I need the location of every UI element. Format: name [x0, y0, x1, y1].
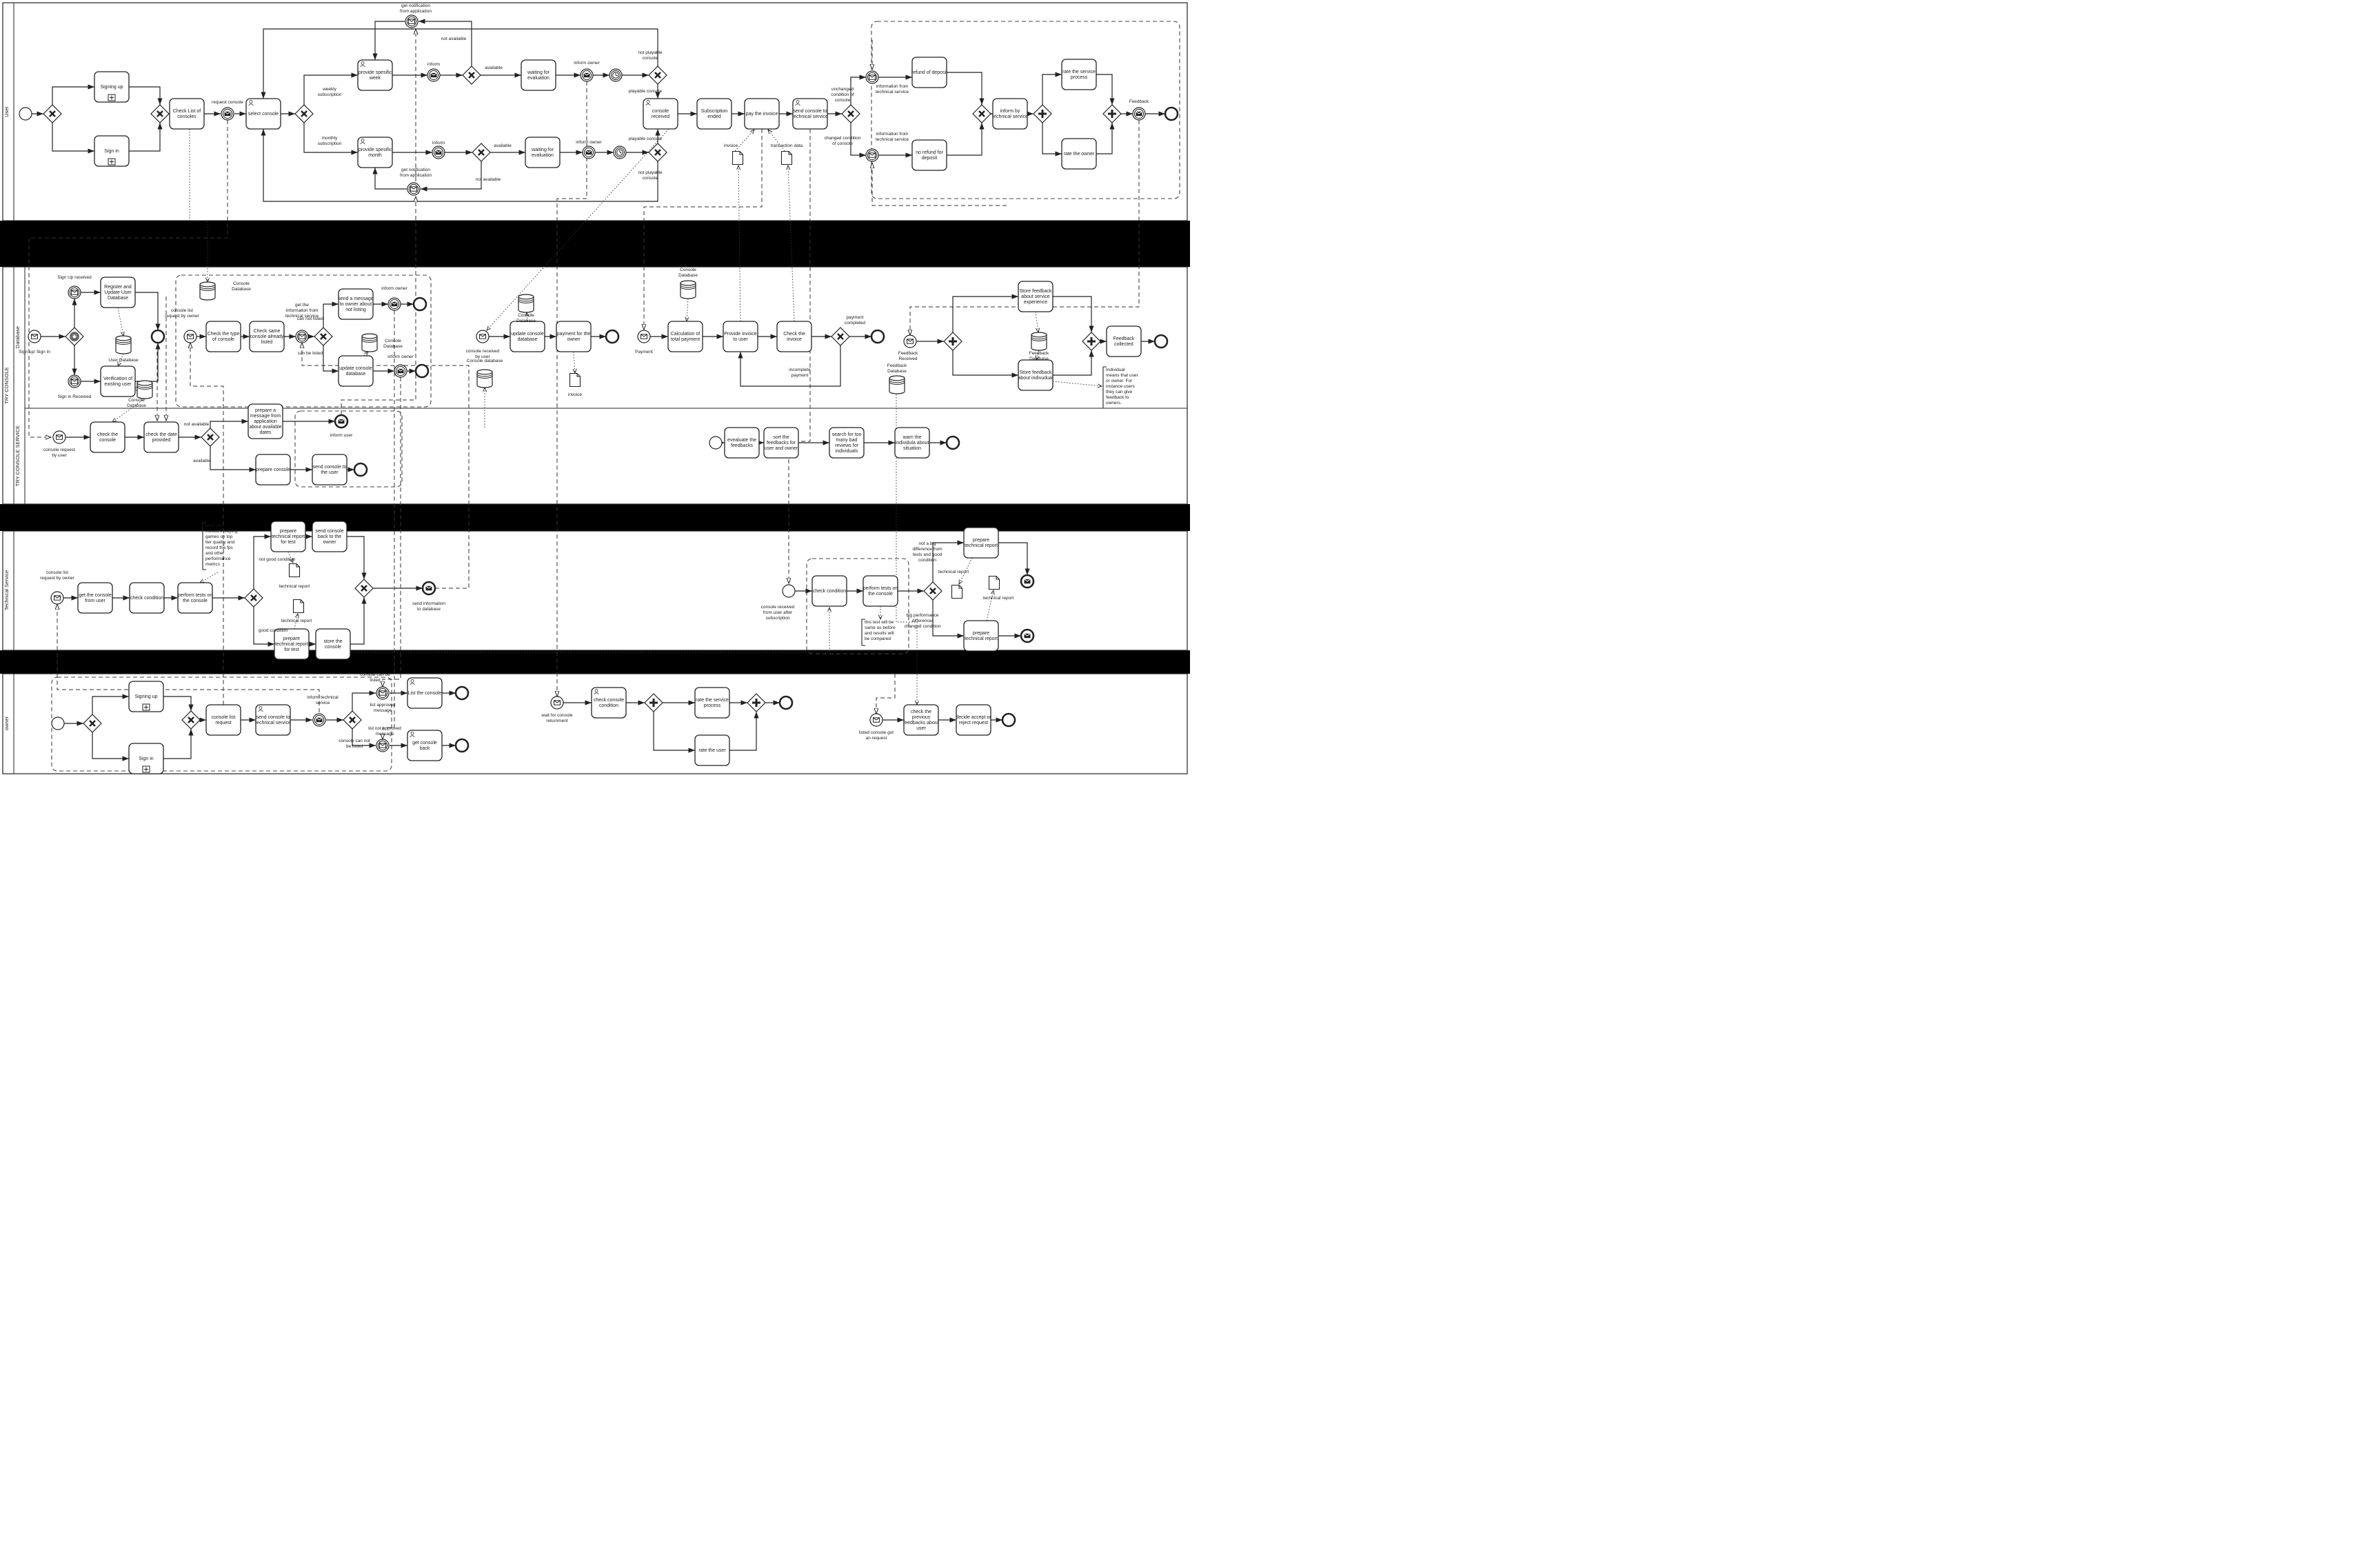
d_cdb4[interactable] — [518, 294, 534, 312]
d_fbdb2[interactable] — [889, 376, 905, 394]
label: service — [316, 701, 330, 705]
label: available — [494, 143, 512, 148]
t2_srch[interactable]: search for toomany badreviews forindivid… — [829, 428, 864, 458]
d_end4[interactable] — [606, 330, 618, 343]
label: Sign up/ Sign In — [19, 350, 50, 354]
label: Check same — [254, 329, 281, 334]
o_sendtech[interactable]: send console totechnical service — [255, 705, 291, 735]
label: request — [215, 721, 231, 725]
d_gw3[interactable] — [831, 328, 849, 345]
d_fbcol[interactable]: Feedbackcollected — [1107, 326, 1141, 357]
label: Database — [232, 287, 251, 292]
edge-label: not playableconsole — [638, 50, 662, 61]
u_gw3[interactable] — [295, 105, 313, 123]
label: Console — [680, 268, 696, 272]
u_select[interactable]: select console — [246, 99, 281, 129]
u_gw2[interactable] — [151, 105, 169, 123]
label: inform owner — [381, 286, 407, 291]
label: Database — [127, 403, 146, 408]
label: condition — [918, 558, 936, 563]
label: message from — [250, 414, 281, 419]
label: console received — [466, 349, 500, 354]
edge-label: available — [193, 459, 211, 463]
d_gwP2[interactable] — [1082, 332, 1100, 350]
label: waiting for — [527, 70, 550, 75]
data-association — [350, 608, 829, 652]
d_sir[interactable] — [68, 375, 81, 388]
d_fbdb[interactable] — [1031, 332, 1047, 350]
sequence-flow — [129, 87, 160, 105]
label: previous — [912, 715, 931, 720]
u_norefund[interactable]: no refund fordeposit — [912, 140, 947, 170]
edge-label: console receivedfrom user aftersubscript… — [761, 605, 795, 621]
doc_invoice[interactable] — [733, 152, 743, 165]
label: listed — [370, 678, 381, 683]
label: technical service — [876, 90, 909, 94]
data-association — [364, 352, 368, 356]
d_end3[interactable] — [416, 365, 428, 377]
label: incomplete — [789, 368, 811, 372]
sequence-flow — [135, 292, 158, 330]
label: Sign Up received — [57, 275, 92, 280]
ts2_start[interactable] — [783, 585, 795, 597]
edge-label: User Database — [108, 358, 139, 363]
o_start[interactable] — [52, 717, 64, 730]
d_end1[interactable] — [152, 330, 164, 343]
label: feedbacks — [731, 443, 753, 448]
d_ssvc[interactable]: Store feedbackabout serviceexperience — [1018, 281, 1053, 312]
label: Technical Service — [3, 570, 10, 610]
u_notif_top[interactable] — [405, 15, 418, 28]
o_gw3[interactable] — [343, 711, 361, 729]
u_month[interactable]: provide spesificmonth — [358, 137, 392, 168]
u_gw7[interactable] — [649, 143, 667, 161]
t_date[interactable]: check the dateprovided — [144, 422, 179, 452]
label: request console — [212, 100, 243, 105]
edge-label: not a bigdifference fromtests and goodco… — [912, 541, 942, 563]
ts_back[interactable]: send consoleback to theowner — [312, 521, 347, 552]
label: payment — [847, 315, 864, 320]
label: Database — [887, 369, 907, 374]
o_ruser[interactable]: rate the user — [695, 735, 729, 765]
d_prov[interactable]: Provide invoiceto user — [723, 321, 758, 352]
o_nappr[interactable] — [376, 739, 389, 752]
o_dec[interactable]: decide accept orreject request — [956, 705, 991, 735]
label: condition — [599, 703, 618, 708]
label: the console — [868, 592, 893, 597]
u_recv[interactable]: consolereceived — [643, 99, 678, 129]
u_gw10[interactable] — [1033, 105, 1051, 123]
d_gw2[interactable] — [314, 328, 332, 345]
o_gwP2[interactable] — [747, 694, 765, 712]
o_it[interactable] — [313, 714, 325, 726]
ts2_tests[interactable]: perform tests onthe console — [863, 576, 898, 606]
label: rate the service — [1062, 70, 1096, 74]
u_fb[interactable] — [1133, 108, 1145, 120]
d_cdb1[interactable] — [137, 381, 152, 399]
o_end2[interactable] — [456, 739, 468, 752]
label: console can not — [339, 739, 370, 743]
ts2_end2[interactable] — [1021, 630, 1033, 642]
label: metrics — [205, 562, 221, 567]
ts_gw1[interactable] — [245, 589, 263, 607]
label: collected — [1114, 342, 1133, 347]
edge-label: ConsoleDatabase — [127, 398, 146, 408]
label: prepare console — [256, 468, 290, 472]
d_io1[interactable] — [388, 298, 401, 310]
sequence-flow — [654, 712, 695, 750]
ts_tests[interactable]: perform tests onthe console — [178, 583, 213, 613]
label: of console — [212, 337, 234, 342]
t2_end[interactable] — [947, 437, 959, 449]
d_io2[interactable] — [394, 365, 407, 377]
d_upd1[interactable]: update consoledatabase — [339, 356, 373, 386]
label: console list — [46, 570, 68, 575]
label: returnment — [546, 719, 568, 723]
u_notif_bot[interactable] — [407, 183, 420, 195]
t_iu[interactable] — [335, 415, 347, 428]
edge-label: console listrequest by owner — [40, 570, 75, 581]
u_refund[interactable]: refund of deposit — [911, 57, 947, 88]
d_start[interactable] — [28, 330, 41, 343]
u_signup[interactable]: Signing up — [94, 72, 129, 102]
d_recvu[interactable] — [476, 330, 489, 343]
label: to user — [733, 337, 748, 342]
edge-label: console receivedby user — [466, 349, 500, 359]
label: provide spesific — [359, 148, 392, 152]
pool-separator-band — [0, 650, 1190, 674]
u_gw6[interactable] — [472, 143, 490, 161]
u_info1[interactable] — [866, 71, 878, 83]
edge-label: invoice — [568, 392, 583, 397]
label: from user — [85, 599, 105, 603]
edge-label: can be listed — [298, 351, 323, 356]
label: process — [704, 703, 721, 708]
label: to owner about — [340, 302, 372, 307]
label: rate the owner — [1064, 152, 1095, 157]
t2_eval[interactable]: evealuate thefeedbacks — [725, 428, 759, 458]
d_upd2[interactable]: update consoledatabase — [510, 321, 545, 352]
edge-label: ConsoleDatabase — [232, 281, 251, 292]
doc_tr1[interactable] — [290, 564, 300, 577]
label: includes playing — [205, 529, 238, 534]
label: subscription — [318, 92, 342, 97]
t_gw[interactable] — [201, 428, 219, 446]
label: changed condition — [905, 624, 941, 629]
d_fbrecv[interactable] — [904, 335, 916, 348]
u_timer1[interactable] — [609, 69, 622, 81]
label: inform owner — [574, 61, 600, 66]
label: about service — [1021, 294, 1050, 299]
ts_prep1[interactable]: preparetechnical reportfor test — [271, 521, 305, 552]
d_payown[interactable]: payment for theowner — [556, 321, 591, 352]
label: technical service — [992, 114, 1028, 119]
o_listreq[interactable]: console listrequest — [206, 705, 241, 735]
label: be listed — [346, 744, 363, 749]
edge-label: Sign in Received — [58, 394, 92, 399]
d_sur[interactable] — [68, 286, 81, 299]
label: big performance — [907, 613, 939, 618]
label: message — [374, 708, 392, 713]
label: owners. — [1106, 401, 1122, 405]
d_udb[interactable] — [116, 336, 131, 354]
u_subend[interactable]: Subscriptionended — [697, 99, 732, 129]
label: console can be — [360, 672, 390, 677]
ts_si[interactable] — [423, 582, 435, 594]
label: Feedback — [1029, 351, 1049, 356]
edge-label: Sign Up received — [57, 275, 92, 280]
label: update console — [339, 366, 372, 371]
label: be compared — [865, 637, 891, 641]
ts2_chk[interactable]: check condition — [812, 576, 847, 606]
d_calc[interactable]: Calculation oftotal payment — [668, 321, 703, 352]
o_signin[interactable]: Sign in — [129, 743, 163, 774]
d_gwP1[interactable] — [944, 332, 962, 350]
d_chk[interactable]: Check theinvoice — [777, 321, 811, 352]
u_io2[interactable] — [583, 146, 595, 159]
label: information from — [876, 84, 909, 89]
edge-label: invoice — [724, 143, 738, 148]
ts_start[interactable] — [51, 592, 63, 604]
edge-label: inform — [427, 62, 440, 67]
label: rate the service — [696, 698, 729, 703]
d_csame[interactable]: Check sameconsole alreadylisted — [250, 321, 284, 352]
u_week[interactable]: provide spesificweek — [358, 60, 392, 90]
label: existing user — [104, 382, 132, 387]
edge-label: Inform — [432, 141, 445, 146]
label: Provide invoice — [724, 332, 757, 337]
label: playable console — [629, 137, 663, 141]
d_invdoc[interactable] — [570, 374, 581, 387]
label: Console — [518, 313, 534, 318]
label: user and owner — [765, 446, 798, 451]
u_wait1[interactable]: waiting forevaluation — [521, 60, 556, 90]
label: TRY CONSOLE — [3, 367, 10, 404]
label: this test will be — [865, 620, 894, 625]
u_inform2[interactable] — [432, 146, 445, 159]
edge-label: playable console — [629, 89, 663, 94]
u_timer2[interactable] — [614, 146, 626, 159]
d_sind[interactable]: Store feedbackabout indivudual — [1018, 360, 1053, 390]
label: week — [369, 76, 381, 81]
o_cfb[interactable]: check thepreviousfeedbacks aboutuser — [903, 705, 938, 735]
label: perform tests on — [863, 586, 898, 591]
d_end5[interactable] — [871, 330, 884, 343]
d_end6[interactable] — [1155, 335, 1167, 348]
d_sendmsg[interactable]: send a messageto owner aboutnot listing — [338, 289, 373, 319]
u_signin[interactable]: Sign in — [94, 136, 129, 166]
doc_tr4[interactable] — [989, 577, 1000, 590]
event-subprocess-frame — [295, 411, 402, 487]
u_informbt[interactable]: inform bytechnical service — [992, 99, 1028, 129]
label: inform — [427, 62, 440, 67]
o_back[interactable]: get consoleback — [407, 730, 442, 761]
u_inform1[interactable] — [427, 69, 440, 81]
d_cdb3[interactable] — [362, 334, 377, 352]
ts2_gw[interactable] — [924, 582, 942, 600]
label: get notification — [401, 168, 430, 172]
d_pay[interactable] — [638, 330, 650, 343]
message-flow — [876, 674, 895, 714]
label: individula about — [896, 441, 929, 445]
label: reject request — [959, 721, 988, 725]
label: inform technical — [307, 695, 339, 700]
t_end[interactable] — [354, 463, 367, 476]
label: evealuate the — [727, 438, 756, 443]
label: or owner. For — [1106, 379, 1133, 383]
label: an request — [866, 736, 887, 741]
o_signup[interactable]: Signing up — [129, 681, 163, 712]
label: refund of deposit — [911, 70, 947, 75]
u_ratesvc[interactable]: rate the serviceprocess — [1062, 59, 1096, 90]
d_end2[interactable] — [414, 298, 426, 310]
sequence-flow — [352, 693, 376, 711]
u_gw4[interactable] — [463, 66, 481, 84]
u_gw5[interactable] — [649, 66, 667, 84]
label: good condition — [259, 628, 288, 633]
o_end1[interactable] — [456, 687, 468, 699]
data-association — [1036, 312, 1038, 332]
label: Update User — [104, 290, 132, 295]
label: payment for the — [557, 332, 591, 337]
label: console — [835, 98, 851, 103]
edge-label: inform user — [330, 433, 353, 438]
label: Verification of — [103, 377, 132, 381]
u_pay[interactable]: pay the invoice — [745, 99, 779, 129]
label: Check List of — [173, 109, 201, 114]
u_gw1[interactable] — [43, 105, 61, 123]
t2_start[interactable] — [709, 437, 722, 449]
label: search for too — [832, 432, 862, 437]
label: select console — [248, 112, 279, 117]
u_checklist[interactable]: Check List ofconsoles — [170, 99, 204, 129]
u_io1[interactable] — [581, 69, 593, 81]
doc_tr2[interactable] — [294, 600, 304, 613]
edge-label: transaction data — [771, 143, 803, 148]
d_cdb5[interactable] — [477, 370, 492, 388]
sequence-flow — [323, 345, 339, 371]
ts_gw2[interactable] — [355, 579, 373, 597]
label: console already — [250, 334, 284, 339]
u_start[interactable] — [19, 108, 32, 120]
label: Feedback — [1113, 337, 1135, 341]
label: tests are — [205, 523, 223, 528]
ts2_prep2[interactable]: preparetechnical report — [964, 621, 998, 651]
label: request by owner — [40, 576, 75, 581]
u_gw11[interactable] — [1103, 105, 1121, 123]
label: performance — [205, 557, 231, 561]
ts2_prep1[interactable]: preparetechnical report — [964, 528, 998, 558]
o_req[interactable] — [870, 714, 883, 726]
o_list[interactable]: List the console — [407, 678, 442, 708]
label: List the console — [408, 691, 442, 696]
label: technical service — [255, 721, 291, 725]
ts_prep2[interactable]: preparetechnical reportfor test — [274, 629, 309, 659]
doc_tr3[interactable] — [952, 585, 962, 599]
label: technical report — [965, 637, 998, 641]
label: games on top — [205, 534, 233, 539]
label: ended — [707, 114, 721, 119]
ts_get[interactable]: get the consolefrom user — [78, 583, 112, 613]
t2_warn[interactable]: warn theindividula aboutsituation — [895, 428, 929, 458]
d_gw1[interactable] — [65, 328, 83, 345]
sequence-flow — [163, 697, 191, 711]
u_sendtech[interactable]: send console totechnical service — [792, 99, 828, 129]
ts2_end1[interactable] — [1021, 575, 1033, 588]
edge-label: technical report — [281, 619, 312, 623]
bpmn-diagram-canvas: UserTRY CONSOLEDatabaseTRY CONSOLE SERVI… — [0, 0, 1190, 776]
label: they can give — [1106, 390, 1133, 394]
pool-separator-band — [0, 221, 1190, 267]
o_wait[interactable] — [551, 697, 563, 709]
u_wait2[interactable]: waiting forevaluation — [525, 137, 560, 168]
ts_chk[interactable]: check condition — [130, 583, 164, 613]
label: and other — [205, 551, 225, 556]
label: send console to — [256, 715, 290, 720]
data-association — [687, 299, 688, 321]
t_sc[interactable]: send console tothe user — [312, 454, 347, 485]
d_ginfo[interactable] — [296, 330, 308, 343]
u_rateown[interactable]: rate the owner — [1062, 139, 1096, 169]
label: individuals — [836, 449, 858, 454]
sequence-flow — [52, 87, 94, 105]
o_appr[interactable] — [376, 687, 389, 699]
label: send a message — [338, 297, 373, 301]
u_end[interactable] — [1165, 108, 1178, 120]
d_cdb2[interactable] — [200, 282, 215, 300]
doc_trans[interactable] — [782, 152, 792, 165]
u_req[interactable] — [221, 108, 234, 120]
label: Feedback — [898, 351, 918, 356]
t2_sort[interactable]: sort thefeedbacks foruser and owner — [764, 428, 798, 458]
sequence-flow — [135, 343, 158, 381]
u_gw9[interactable] — [973, 105, 991, 123]
d_reg[interactable]: Register andUpdate UserDatabase — [101, 277, 135, 308]
o_end4[interactable] — [1002, 714, 1015, 726]
d_cdb6[interactable] — [680, 281, 696, 299]
t_pc[interactable]: prepare console — [256, 454, 290, 485]
d_ver[interactable]: Verification ofexisting user — [101, 366, 135, 397]
o_rsvc[interactable]: rate the serviceprocess — [695, 688, 729, 718]
ts_store[interactable]: store theconsole — [316, 629, 350, 659]
t_prep[interactable]: prepare amessage fromapplicationabout av… — [248, 404, 283, 439]
label: means that user — [1106, 373, 1138, 378]
sequence-flow — [933, 600, 964, 636]
o_end3[interactable] — [780, 697, 792, 709]
d_ctype[interactable]: Check the typeof console — [206, 321, 241, 352]
o_gw1[interactable] — [83, 714, 101, 732]
u_info2[interactable] — [866, 149, 878, 161]
edge-label: not available — [441, 37, 467, 41]
text-annotation: tests areincludes playinggames on toptie… — [203, 523, 238, 570]
t_start[interactable] — [53, 431, 65, 443]
u_gw8[interactable] — [842, 105, 860, 123]
edge-label: ConsoleDatabase — [678, 268, 698, 278]
label: Received — [898, 357, 917, 361]
label: store the — [323, 639, 342, 644]
edge-label: technical report — [279, 584, 310, 589]
label: by user — [52, 453, 67, 458]
d_listreq[interactable] — [184, 330, 196, 343]
edge-label: send informationto database — [412, 601, 445, 612]
label: technical service — [876, 137, 909, 142]
o_gwP1[interactable] — [645, 694, 663, 712]
t_chk[interactable]: check theconsole — [90, 422, 125, 452]
edge-label: playable console — [629, 137, 663, 141]
o_gw2[interactable] — [182, 711, 200, 729]
o_ccond[interactable]: check consolecondition — [592, 688, 626, 718]
label: subscription — [318, 141, 342, 146]
